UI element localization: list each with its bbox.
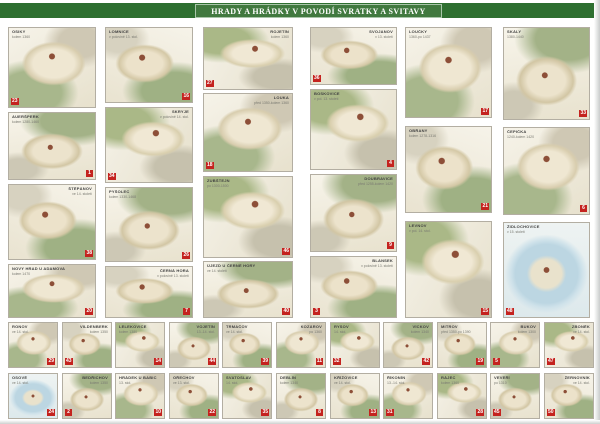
map-number-badge: 13 [369,409,377,416]
castle-panel: KOZÁROVpo 136011 [276,322,326,368]
castle-date-label: 14. stol. [226,381,251,385]
castle-name-label: KOZÁROV [301,325,322,330]
castle-panel: MITROVpřed 1350-po 139019 [437,322,487,368]
map-number-badge: 50 [547,409,555,416]
castle-caption: TRMAČOVve 14. stol. [226,325,248,334]
castle-date-label: v polovině 13. století [157,274,189,278]
castle-name-label: DEBLÍN [280,376,298,381]
castle-caption: VILDENBERKkolem 1350 [80,325,108,334]
castle-caption: RYSOV14. stol. [334,325,349,334]
castle-date-label: kolem 1278-1316 [409,134,436,138]
castle-panel: ŘÍKONÍN13.-14. stol.31 [383,373,433,419]
castle-caption: ZUBŠTEJNpo 1300-1500 [207,179,230,188]
castle-illustration [9,185,95,259]
poster-title-box: HRADY A HRÁDKY V POVODÍ SVRATKY A SVITAV… [195,4,442,18]
castle-date-label: kolem 1350 [82,381,108,385]
castle-caption: BOSKOVICEv pol. 13. století [314,92,340,101]
castle-date-label: po 1310 [494,381,510,385]
map-number-badge: 34 [108,173,116,180]
castle-name-label: SVOJANOV [369,30,393,35]
map-number-badge: 48 [506,308,514,315]
castle-name-label: VILDENBERK [80,325,108,330]
castle-date-label: v 13. století [369,35,393,39]
castle-date-label: 13. stol. [119,381,157,385]
castle-caption: OSOVÉve 14. stol. [12,376,29,385]
castle-name-label: ŠTĚPÁNOV [68,187,92,192]
castle-panel: VEVEŘÍpo 131045 [490,373,540,419]
castle-caption: ŽIDLOCHOVICEv 15. století [507,225,540,234]
castle-name-label: AUERŠPERK [12,115,39,120]
castle-date-label: ve 14. stol. [12,330,29,334]
castle-date-label: v pol. 14. stol. [409,229,431,233]
castle-name-label: HRÁDEK U BABIC [119,376,157,381]
castle-date-label: kolem 1360 [12,35,30,39]
castle-date-label: 1240-kolem 1420 [507,135,534,139]
castle-caption: DOUBRAVICEpřed 1255-kolem 1420 [358,177,393,186]
map-number-badge: 6 [580,205,587,212]
castle-illustration [406,222,491,317]
map-number-badge: 46 [282,248,290,255]
castle-name-label: NOVÝ HRAD U ADAMOVA [12,267,65,272]
castle-caption: ÚJEZD U ČERNÉ HORYve 14. století [207,264,255,273]
castle-name-label: OSOVÉ [12,376,29,381]
castle-panel: SKRYJEv polovině 14. stol.34 [105,107,193,183]
castle-panel: PYŠOLECkolem 1330-146826 [105,187,193,262]
map-number-badge: 8 [316,409,323,416]
castle-caption: LOUČKY1360-po 1437 [409,30,431,39]
castle-caption: PYŠOLECkolem 1330-1468 [109,190,136,199]
map-number-badge: 23 [11,98,19,105]
castle-panel: VILDENBERKkolem 135043 [62,322,112,368]
castle-illustration [504,128,589,214]
map-number-badge: 21 [481,203,489,210]
map-number-badge: 3 [313,308,320,315]
castle-name-label: VÍCKOV [411,325,429,330]
castle-name-label: ÚJEZD U ČERNÉ HORY [207,264,255,269]
castle-caption: DEBLÍNkolem 1340 [280,376,298,385]
map-number-badge: 42 [422,358,430,365]
castle-date-label: v polovině 13. století [361,264,393,268]
castle-date-label: kolem 1280-1460 [12,120,39,124]
castle-date-label: 1380-1440 [507,35,524,39]
castle-name-label: ROJETÍN [270,30,289,35]
castle-date-label: ve 13. stol. [173,381,195,385]
castle-illustration [204,177,292,257]
map-number-badge: 27 [206,80,214,87]
castle-date-label: kolem 1330-1468 [109,195,136,199]
map-number-badge: 43 [65,358,73,365]
castle-caption: ROJETÍNkolem 1360 [270,30,289,39]
castle-illustration [504,223,589,317]
castle-panel: NOVÝ HRAD U ADAMOVAkolem 147020 [8,264,96,318]
castle-panel: AUERŠPERKkolem 1280-14601 [8,112,96,180]
castle-caption: AUERŠPERKkolem 1280-1460 [12,115,39,124]
castle-illustration [406,28,491,117]
castle-date-label: ve 14. stol. [565,381,590,385]
castle-panel: BLANSEKv polovině 13. století3 [310,256,397,318]
map-number-badge: 24 [47,409,55,416]
map-number-badge: 17 [481,108,489,115]
map-number-badge: 39 [261,358,269,365]
castle-panel: OSIKYkolem 136023 [8,27,96,108]
map-number-badge: 40 [282,308,290,315]
castle-date-label: kolem 1340 [411,330,429,334]
castle-caption: RONOVve 14. stol. [12,325,29,334]
castle-panel: ROJETÍNkolem 136027 [203,27,293,90]
castle-panel: OBŘANYkolem 1278-131621 [405,126,492,213]
castle-panel: LELEKOVICEkolem 138014 [115,322,165,368]
castle-date-label: v polovině 14. stol. [160,115,189,119]
map-number-badge: 45 [493,409,501,416]
castle-panel: BUKOVkolem 13005 [490,322,540,368]
castle-panel: RONOVve 14. stol.29 [8,322,58,368]
castle-caption: ČERNÁ HORAv polovině 13. století [157,269,189,278]
castle-caption: KŘÍŽOVICEve 14. stol. [334,376,358,385]
page-edge-right [594,0,600,424]
map-number-badge: 29 [47,358,55,365]
castle-illustration [311,90,396,169]
castle-caption: ŘÍKONÍN13.-14. stol. [387,376,405,385]
castle-date-label: kolem 1360 [270,35,289,39]
castle-caption: OBŘANYkolem 1278-1316 [409,129,436,138]
castle-date-label: 13.-14. stol. [387,381,405,385]
map-number-badge: 1 [86,170,93,177]
castle-date-label: kolem 1350 [80,330,108,334]
map-number-badge: 44 [208,358,216,365]
map-number-badge: 4 [387,160,394,167]
map-number-badge: 2 [65,409,72,416]
castle-panel: ČERNÁ HORAv polovině 13. století7 [105,266,193,318]
castle-panel: LOUČKY1360-po 143717 [405,27,492,118]
castle-illustration [204,94,292,171]
castle-date-label: ve 14. stol. [12,381,29,385]
castle-illustration [106,108,192,182]
map-number-badge: 7 [183,308,190,315]
map-number-badge: 28 [476,409,484,416]
castle-panel: LOMNICEv polovině 13. stol.16 [105,27,193,103]
map-number-badge: 10 [154,409,162,416]
castle-panel: SVATOSLAV14. stol.35 [222,373,272,419]
castle-name-label: BUKOV [518,325,536,330]
castle-caption: RÁJECkolem 1360 [441,376,459,385]
map-number-badge: 16 [182,93,190,100]
castle-caption: LOMNICEv polovině 13. stol. [109,30,138,39]
castle-caption: KOZÁROVpo 1360 [301,325,322,334]
castle-caption: SVATOSLAV14. stol. [226,376,251,385]
castle-date-label: kolem 1380 [119,330,147,334]
page-edge-bottom [0,420,600,424]
map-number-badge: 18 [206,162,214,169]
castle-name-label: BEDŘICHOV [82,376,108,381]
castle-name-label: VOJETÍN [196,325,215,330]
castle-caption: HRÁDEK U BABIC13. stol. [119,376,157,385]
castle-date-label: kolem 1470 [12,272,65,276]
castle-panel: ŽERNOVNÍKve 14. stol.50 [544,373,594,419]
castle-illustration [106,28,192,102]
castle-caption: NOVÝ HRAD U ADAMOVAkolem 1470 [12,267,65,276]
castle-caption: ŠTĚPÁNOVve 14. století [68,187,92,196]
map-number-badge: 32 [333,358,341,365]
castle-name-label: ŽIDLOCHOVICE [507,225,540,230]
castle-date-label: před 1350-po 1390 [441,330,471,334]
castle-caption: ČEPIČKA1240-kolem 1420 [507,130,534,139]
castle-panel: ŽIDLOCHOVICEv 15. století48 [503,222,590,318]
castle-date-label: ve 14. stol. [334,381,358,385]
castle-date-label: po 1360 [301,330,322,334]
castle-panel: RÁJECkolem 136028 [437,373,487,419]
castle-panel: ŠTĚPÁNOVve 14. století38 [8,184,96,260]
castle-date-label: v pol. 13. století [314,97,340,101]
castle-panel: DOUBRAVICEpřed 1255-kolem 14209 [310,174,397,252]
castle-date-label: 13.-14. stol. [196,330,215,334]
castle-panel: ZUBŠTEJNpo 1300-150046 [203,176,293,258]
castle-date-label: před 1255-kolem 1420 [358,182,393,186]
castle-date-label: po 1300-1500 [207,184,230,188]
castle-caption: BLANSEKv polovině 13. století [361,259,393,268]
castle-panel: VÍCKOVkolem 134042 [383,322,433,368]
castle-name-label: TRMAČOV [226,325,248,330]
castle-illustration [406,127,491,212]
castle-caption: LOUKApřed 1350-kolem 1360 [254,96,289,105]
castle-caption: BUKOVkolem 1300 [518,325,536,334]
castle-date-label: kolem 1300 [518,330,536,334]
castle-caption: SKÁLY1380-1440 [507,30,524,39]
map-number-badge: 22 [208,409,216,416]
castle-illustration [504,28,589,119]
castle-caption: SKRYJEv polovině 14. stol. [160,110,189,119]
castle-caption: OSIKYkolem 1360 [12,30,30,39]
map-number-badge: 14 [154,358,162,365]
castle-panel: BEDŘICHOVkolem 13502 [62,373,112,419]
castle-caption: ZBONĚKve 14. stol. [572,325,590,334]
castle-date-label: kolem 1340 [280,381,298,385]
castle-caption: MITROVpřed 1350-po 1390 [441,325,471,334]
castle-caption: VEVEŘÍpo 1310 [494,376,510,385]
castle-caption: OŘECHOVve 13. stol. [173,376,195,385]
castle-name-label: ZBONĚK [572,325,590,330]
castle-panel: ÚJEZD U ČERNÉ HORYve 14. století40 [203,261,293,318]
castle-name-label: OŘECHOV [173,376,195,381]
castle-panel: RYSOV14. stol.32 [330,322,380,368]
castle-panel: SKÁLY1380-144033 [503,27,590,120]
castle-date-label: ve 14. stol. [226,330,248,334]
map-number-badge: 11 [316,358,323,365]
title-banner: HRADY A HRÁDKY V POVODÍ SVRATKY A SVITAV… [0,3,600,18]
castle-name-label: KŘÍŽOVICE [334,376,358,381]
map-number-badge: 5 [493,358,500,365]
castle-date-label: v polovině 13. stol. [109,35,138,39]
castle-panel: LOUKApřed 1350-kolem 136018 [203,93,293,172]
map-number-badge: 36 [313,75,321,82]
castle-illustration [311,175,396,251]
map-number-badge: 38 [85,250,93,257]
castle-date-label: ve 14. stol. [572,330,590,334]
castle-name-label: SVATOSLAV [226,376,251,381]
castle-name-label: RONOV [12,325,29,330]
castle-date-label: ve 14. století [207,269,255,273]
castle-panel: BOSKOVICEv pol. 13. století4 [310,89,397,170]
map-number-badge: 31 [386,409,394,416]
map-number-badge: 19 [476,358,484,365]
castle-date-label: před 1350-kolem 1360 [254,101,289,105]
castle-illustration [106,188,192,261]
castle-caption: ŽERNOVNÍKve 14. stol. [565,376,590,385]
map-number-badge: 35 [261,409,269,416]
castle-name-label: ZUBŠTEJN [207,179,230,184]
castle-name-label: ČERNÁ HORA [157,269,189,274]
castle-panel: HRÁDEK U BABIC13. stol.10 [115,373,165,419]
castle-caption: BEDŘICHOVkolem 1350 [82,376,108,385]
castle-panel: VOJETÍN13.-14. stol.44 [169,322,219,368]
castle-panel: KŘÍŽOVICEve 14. stol.13 [330,373,380,419]
castle-date-label: ve 14. století [68,192,92,196]
map-number-badge: 9 [387,242,394,249]
map-number-badge: 33 [579,110,587,117]
castle-name-label: ŘÍKONÍN [387,376,405,381]
castle-panel: LEVNOVv pol. 14. stol.15 [405,221,492,318]
castle-date-label: v 15. století [507,230,540,234]
castle-panel: ZBONĚKve 14. stol.47 [544,322,594,368]
castle-name-label: RYSOV [334,325,349,330]
castle-panel: ČEPIČKA1240-kolem 14206 [503,127,590,215]
castle-panel: OSOVÉve 14. stol.24 [8,373,58,419]
map-number-badge: 15 [481,308,489,315]
castle-name-label: ŽERNOVNÍK [565,376,590,381]
castle-illustration [9,28,95,107]
map-number-badge: 20 [85,308,93,315]
castle-caption: VOJETÍN13.-14. stol. [196,325,215,334]
castle-caption: LEVNOVv pol. 14. stol. [409,224,431,233]
castle-caption: VÍCKOVkolem 1340 [411,325,429,334]
castle-date-label: 14. stol. [334,330,349,334]
castle-caption: LELEKOVICEkolem 1380 [119,325,147,334]
castle-name-label: LELEKOVICE [119,325,147,330]
poster-title: HRADY A HRÁDKY V POVODÍ SVRATKY A SVITAV… [211,7,425,16]
castle-panel: OŘECHOVve 13. stol.22 [169,373,219,419]
castle-panel: DEBLÍNkolem 13408 [276,373,326,419]
castle-name-label: VEVEŘÍ [494,376,510,381]
castle-caption: SVOJANOVv 13. století [369,30,393,39]
map-number-badge: 26 [182,252,190,259]
castle-panel: SVOJANOVv 13. století36 [310,27,397,85]
poster-page: HRADY A HRÁDKY V POVODÍ SVRATKY A SVITAV… [0,0,600,424]
castle-date-label: 1360-po 1437 [409,35,431,39]
castle-name-label: BOSKOVICE [314,92,340,97]
castle-panel: TRMAČOVve 14. stol.39 [222,322,272,368]
map-number-badge: 47 [547,358,555,365]
castle-date-label: kolem 1360 [441,381,459,385]
